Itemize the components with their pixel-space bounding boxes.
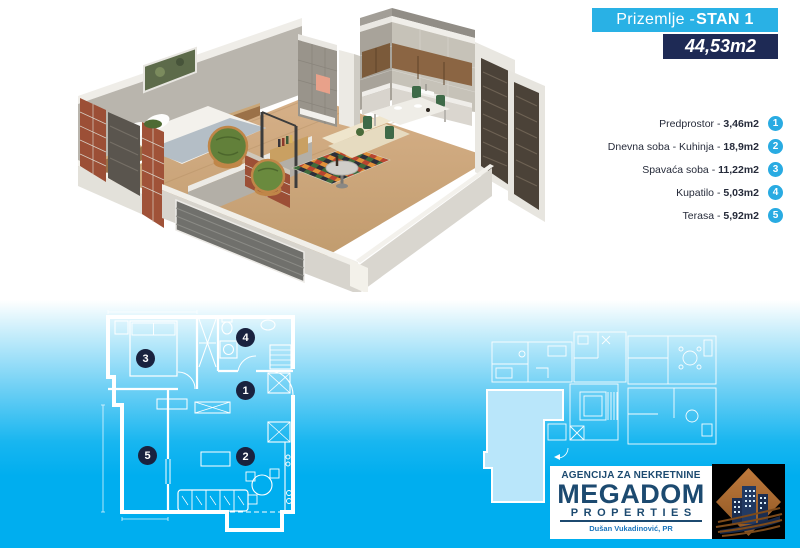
megadom-logo-mark xyxy=(712,464,785,539)
plan-marker-4: 4 xyxy=(236,328,255,347)
room-label: Predprostor - 3,46m2 xyxy=(659,118,759,130)
room-number-badge: 1 xyxy=(768,116,783,131)
room-label: Kupatilo - 5,03m2 xyxy=(676,187,759,199)
room-row-dnevna-soba: Dnevna soba - Kuhinja - 18,9m2 2 xyxy=(608,135,783,158)
unit-label: STAN 1 xyxy=(696,11,754,29)
plan-arrow xyxy=(554,454,560,460)
floor-title-bar: Prizemlje - STAN 1 xyxy=(592,8,778,32)
papasan-chair xyxy=(209,127,247,167)
plant xyxy=(144,120,162,129)
room-number-badge: 4 xyxy=(768,185,783,200)
plan-marker-2: 2 xyxy=(236,447,255,466)
floor-label: Prizemlje - xyxy=(616,11,695,29)
plan-marker-3: 3 xyxy=(136,349,155,368)
room-row-kupatilo: Kupatilo - 5,03m2 4 xyxy=(608,181,783,204)
logo-brand: MEGADOM xyxy=(550,481,712,507)
logo-subbrand: PROPERTIES xyxy=(560,507,702,522)
apartment-3d-render xyxy=(60,0,545,292)
papasan-chair-2 xyxy=(252,160,284,195)
room-label: Dnevna soba - Kuhinja - 18,9m2 xyxy=(608,141,759,153)
room-number-badge: 5 xyxy=(768,208,783,223)
room-row-spavaca-soba: Spavaća soba - 11,22m2 3 xyxy=(608,158,783,181)
diamond-buildings-icon xyxy=(712,464,785,539)
floor-plan-drawing xyxy=(100,309,315,548)
room-list: Predprostor - 3,46m2 1 Dnevna soba - Kuh… xyxy=(608,112,783,227)
megadom-logo: AGENCIJA ZA NEKRETNINE MEGADOM PROPERTIE… xyxy=(550,466,712,539)
flyer-page: Prizemlje - STAN 1 44,53m2 Predprostor -… xyxy=(0,0,800,548)
door xyxy=(339,50,354,128)
plan-marker-5: 5 xyxy=(138,446,157,465)
room-label: Terasa - 5,92m2 xyxy=(683,210,759,222)
total-area-badge: 44,53m2 xyxy=(663,34,778,59)
room-number-badge: 3 xyxy=(768,162,783,177)
plan-marker-1: 1 xyxy=(236,381,255,400)
room-row-terasa: Terasa - 5,92m2 5 xyxy=(608,204,783,227)
room-label: Spavaća soba - 11,22m2 xyxy=(642,164,759,176)
bathroom-block xyxy=(298,34,360,130)
room-row-predprostor: Predprostor - 3,46m2 1 xyxy=(608,112,783,135)
room-number-badge: 2 xyxy=(768,139,783,154)
floor-plan-2d: 3 4 1 5 2 xyxy=(100,309,315,548)
logo-registrant-line: Dušan Vukadinović, PR xyxy=(550,524,712,533)
